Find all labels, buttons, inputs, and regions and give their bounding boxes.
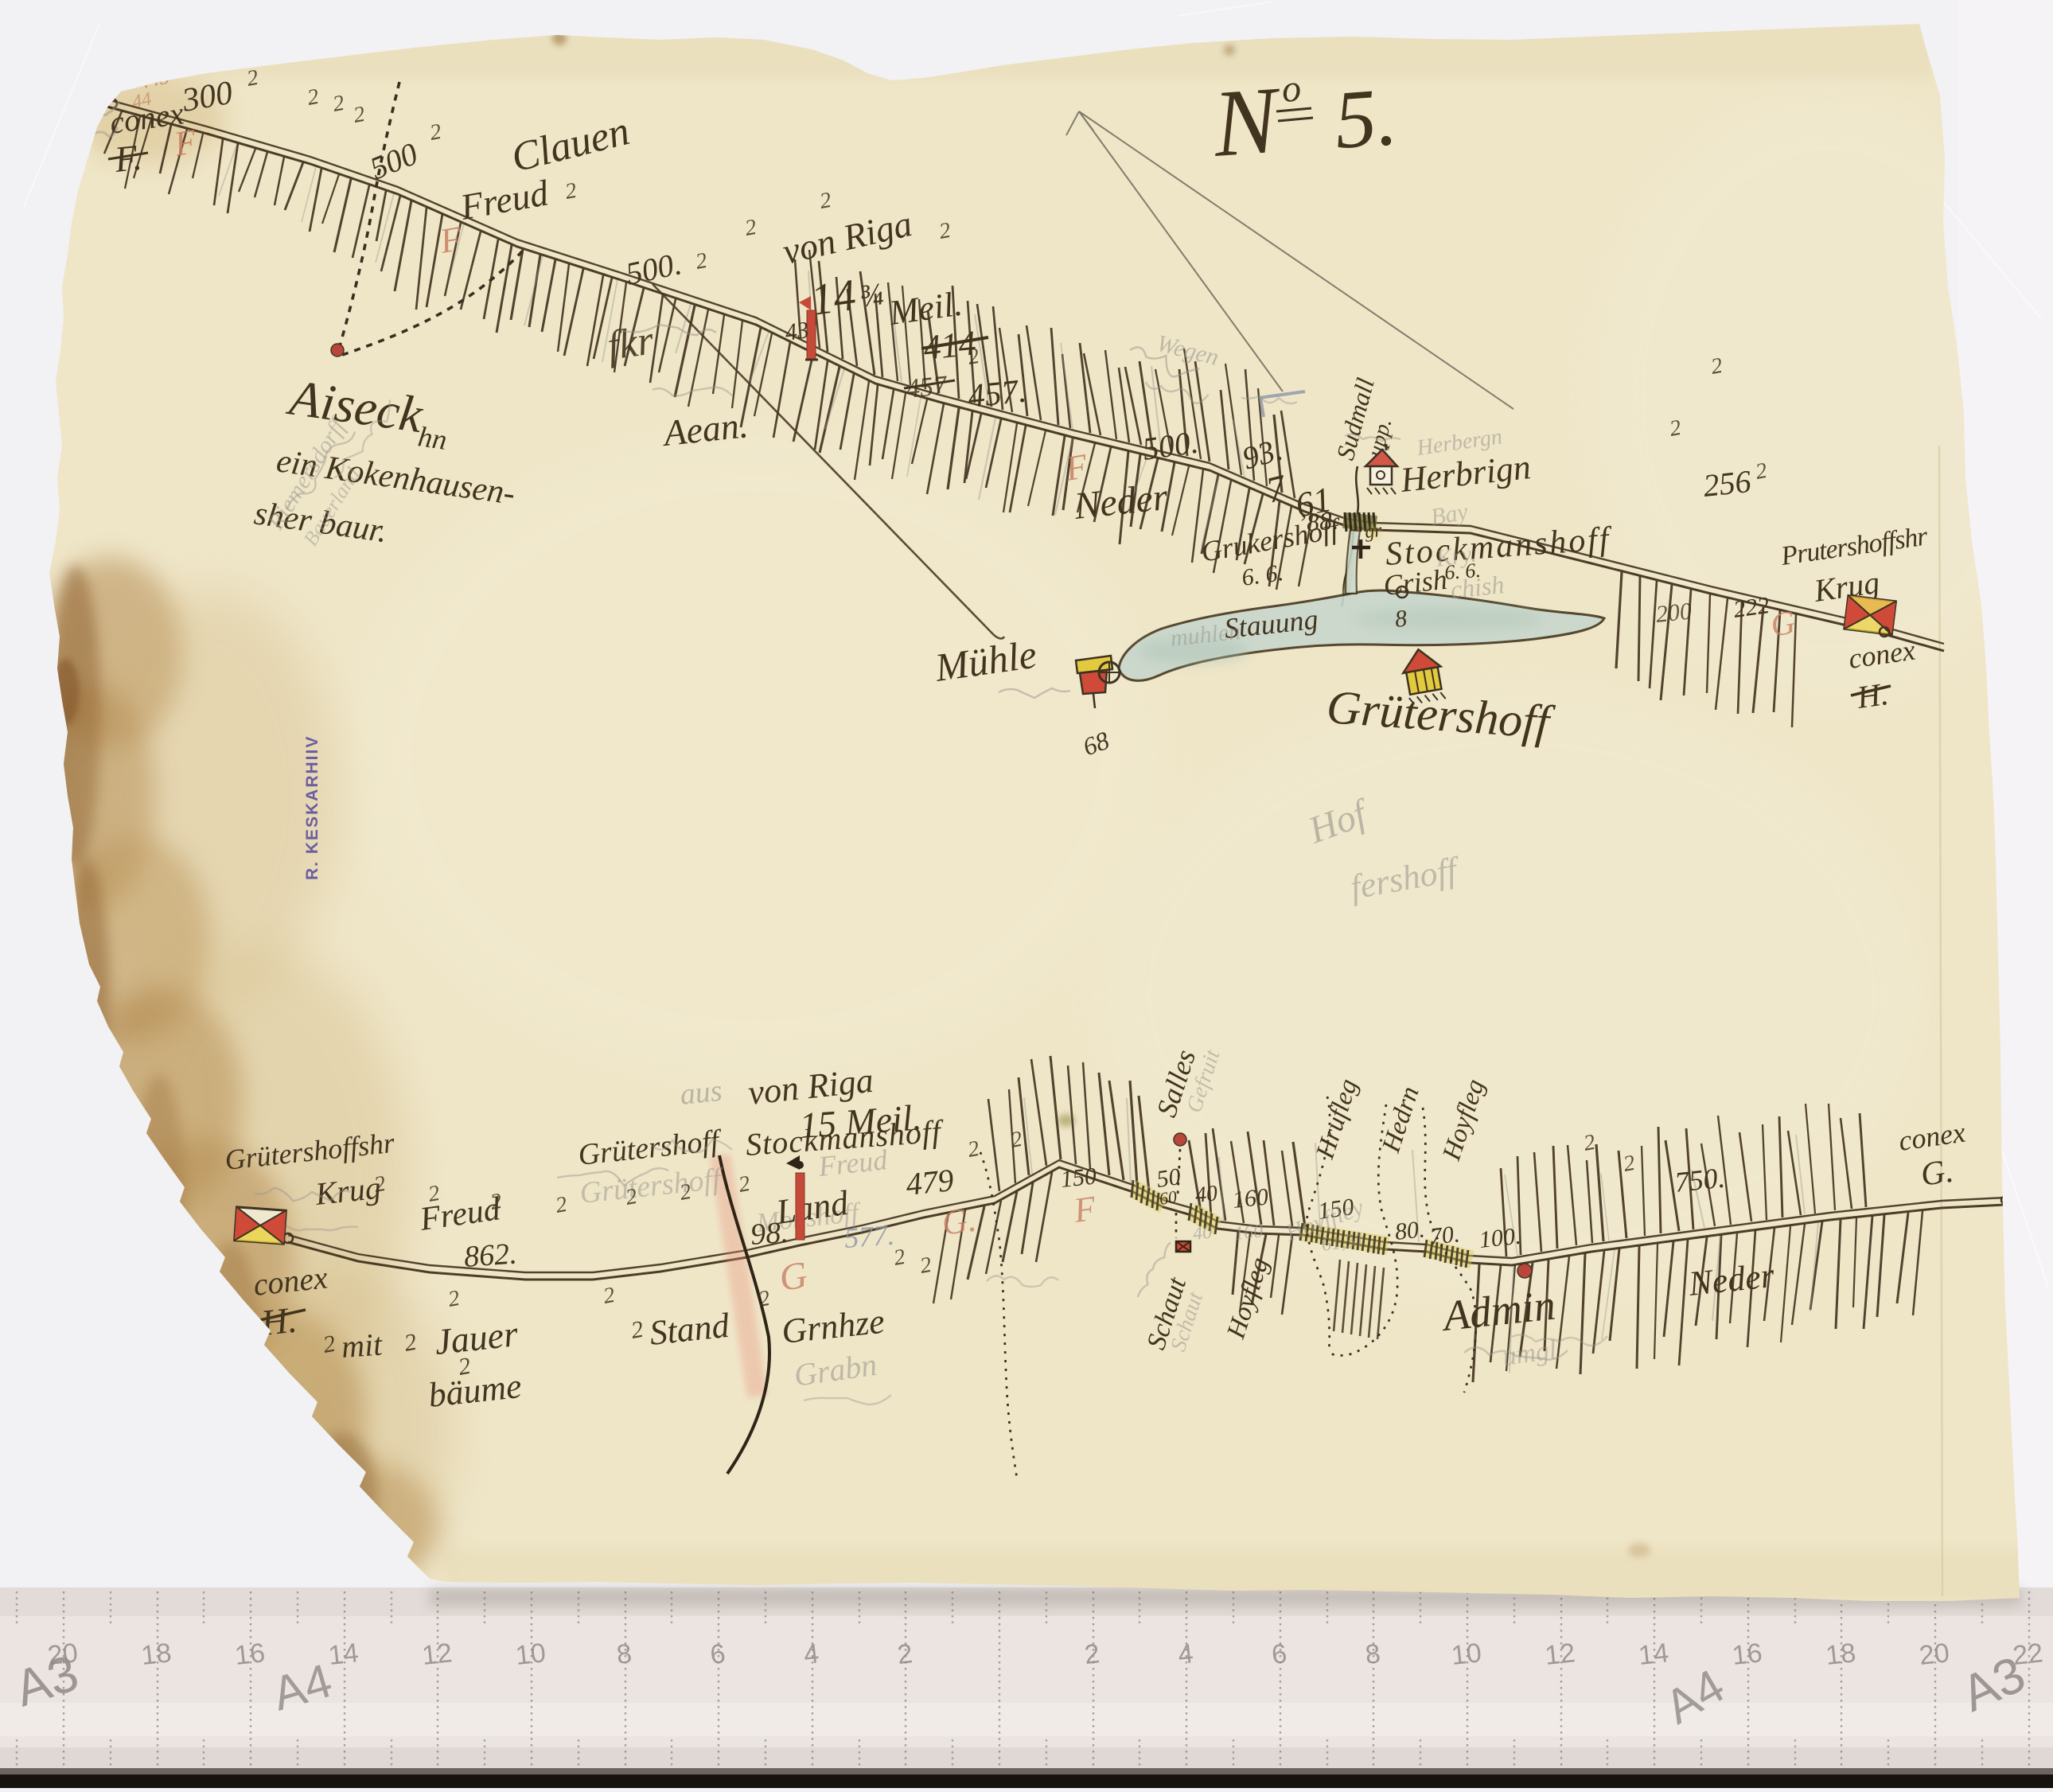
svg-text:6: 6 — [709, 1638, 727, 1670]
svg-text:12: 12 — [1544, 1638, 1577, 1671]
svg-text:862.: 862. — [463, 1237, 518, 1274]
svg-text:18: 18 — [140, 1638, 173, 1671]
svg-text:8: 8 — [1364, 1638, 1382, 1670]
svg-text:4: 4 — [802, 1638, 820, 1670]
svg-text:fkr: fkr — [605, 317, 657, 369]
svg-text:43: 43 — [783, 317, 810, 346]
svg-text:14: 14 — [327, 1638, 360, 1671]
svg-text:10: 10 — [1450, 1638, 1483, 1671]
svg-text:2: 2 — [1083, 1638, 1101, 1670]
svg-text:aus: aus — [679, 1074, 724, 1112]
svg-text:160: 160 — [1231, 1183, 1269, 1213]
svg-text:750.: 750. — [1673, 1162, 1727, 1198]
svg-text:150: 150 — [1059, 1163, 1097, 1193]
svg-text:70.: 70. — [1428, 1221, 1461, 1250]
svg-text:18: 18 — [1824, 1638, 1857, 1671]
svg-text:6: 6 — [1270, 1638, 1288, 1670]
svg-text:200: 200 — [1654, 598, 1693, 628]
svg-text:577.: 577. — [843, 1219, 896, 1254]
svg-text:256: 256 — [1701, 463, 1752, 504]
svg-text:hn: hn — [416, 420, 449, 456]
svg-text:40: 40 — [1194, 1181, 1218, 1208]
svg-text:G.: G. — [940, 1199, 979, 1242]
svg-text:G: G — [777, 1254, 810, 1299]
svg-text:N: N — [1210, 66, 1286, 177]
svg-text:100.: 100. — [1478, 1223, 1522, 1253]
svg-text:160: 160 — [1233, 1221, 1264, 1245]
svg-text:2: 2 — [896, 1638, 914, 1670]
svg-text:mit: mit — [340, 1326, 384, 1365]
svg-text:4: 4 — [1177, 1638, 1195, 1670]
svg-text:H.: H. — [1854, 676, 1891, 715]
svg-text:Crish: Crish — [1382, 563, 1449, 602]
svg-text:gr: gr — [1364, 520, 1384, 543]
svg-text:¾: ¾ — [857, 275, 886, 314]
svg-text:16: 16 — [1731, 1638, 1764, 1671]
svg-text:5.: 5. — [1332, 71, 1400, 166]
svg-text:20: 20 — [1918, 1638, 1951, 1671]
svg-text:G.: G. — [1919, 1153, 1956, 1194]
svg-text:12: 12 — [420, 1638, 454, 1671]
svg-text:8: 8 — [615, 1638, 633, 1670]
svg-text:479: 479 — [904, 1162, 955, 1202]
svg-text:40: 40 — [1192, 1222, 1213, 1245]
svg-text:16: 16 — [233, 1638, 267, 1671]
svg-text:chish: chish — [1449, 570, 1506, 604]
svg-text:98.: 98. — [750, 1216, 789, 1252]
svg-text:10: 10 — [514, 1638, 547, 1671]
svg-text:457.: 457. — [966, 373, 1028, 415]
svg-text:R. KESKARHIIV: R. KESKARHIIV — [303, 735, 321, 880]
svg-text:222: 222 — [1732, 592, 1771, 623]
svg-text:o: o — [1280, 67, 1303, 111]
svg-text:80.: 80. — [1393, 1216, 1426, 1245]
svg-text:60: 60 — [1158, 1186, 1178, 1209]
svg-text:14: 14 — [1637, 1638, 1670, 1671]
